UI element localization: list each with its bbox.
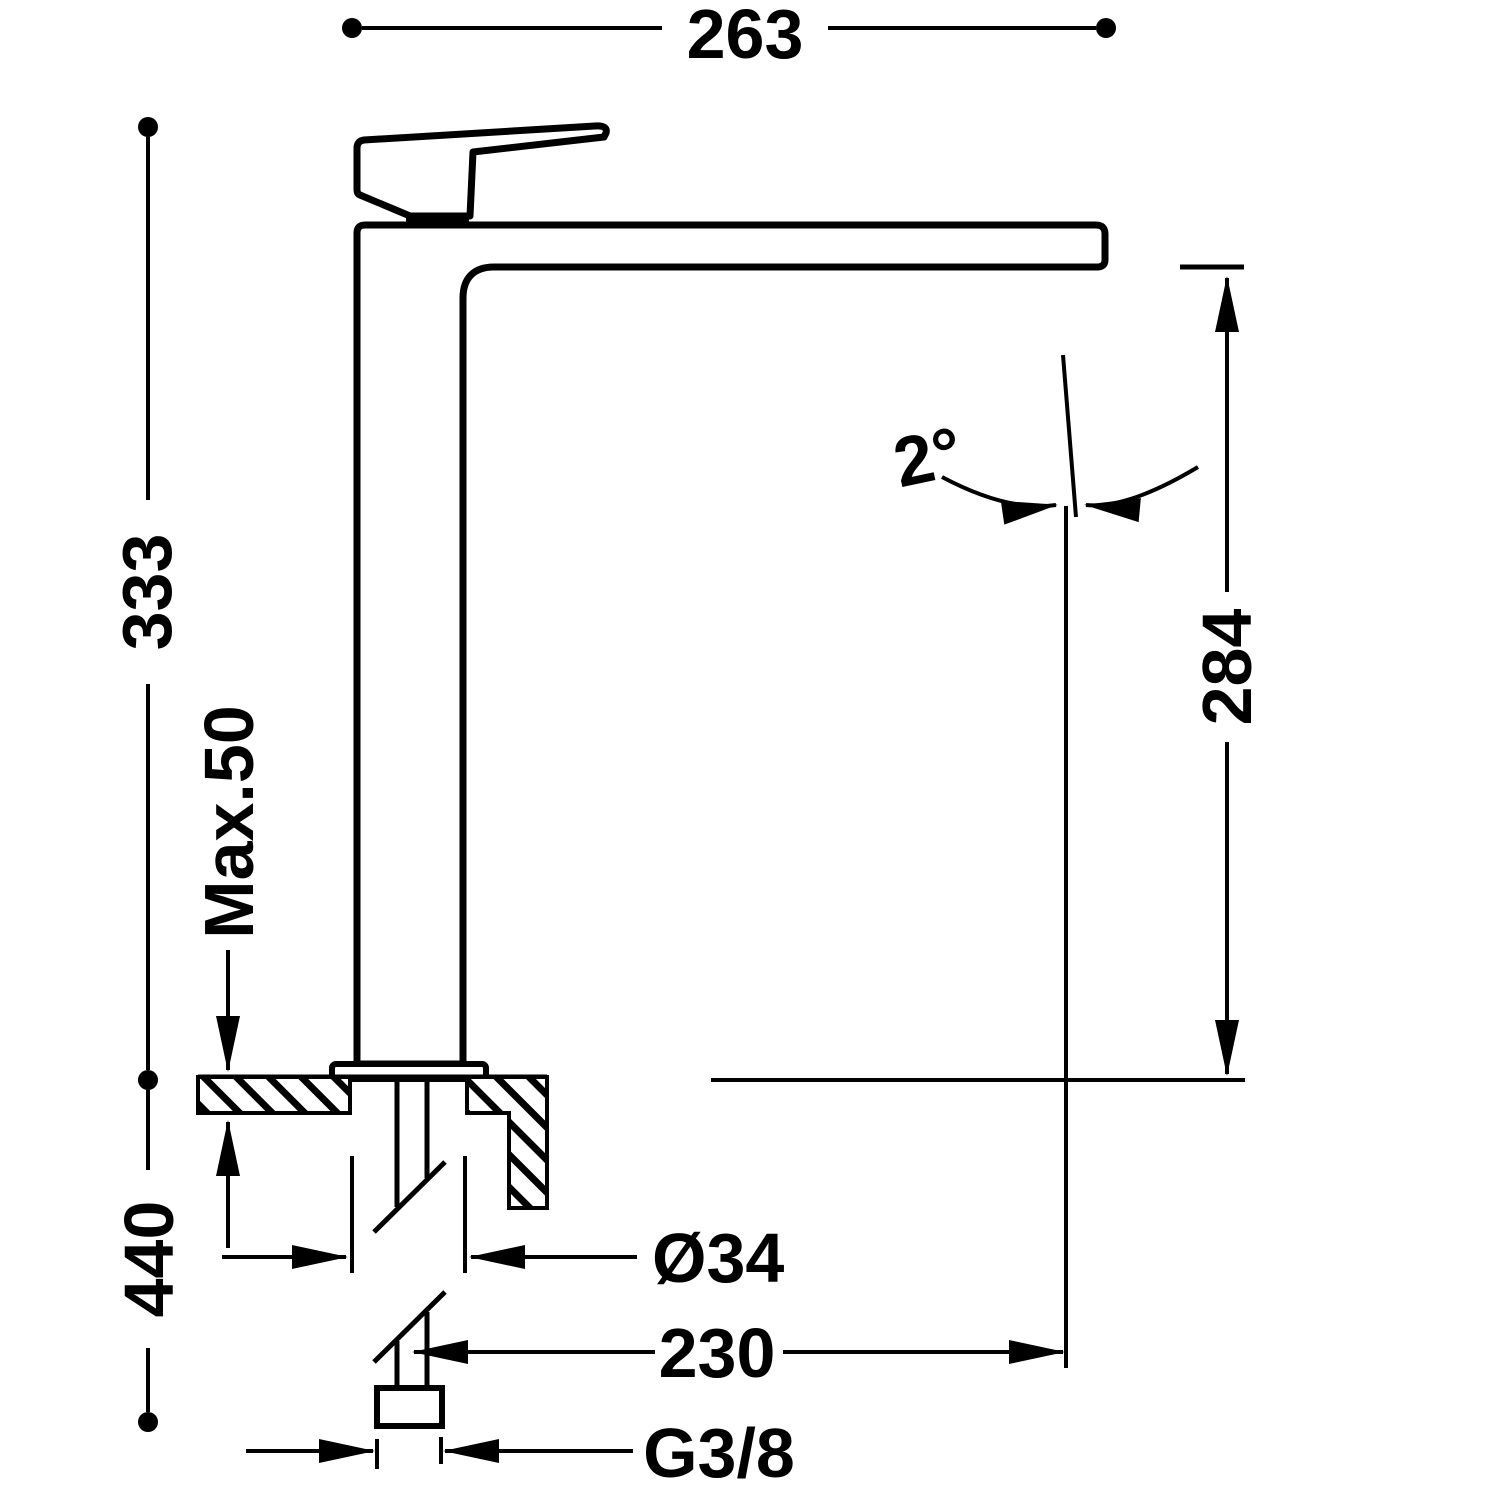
dim-endpoint-dot xyxy=(138,117,158,137)
dim-height-above-counter-group: 333 xyxy=(108,117,186,1090)
faucet-outline-group xyxy=(332,126,1105,1079)
faucet-body-and-spout-outline xyxy=(357,225,1105,1064)
overall-width-label: 263 xyxy=(687,0,804,73)
tilted-axis-line xyxy=(1063,355,1076,517)
dim-total-height-group: 440 xyxy=(110,1090,188,1432)
angle-arc-right xyxy=(1086,467,1198,505)
counter-section-group xyxy=(198,1077,547,1208)
dim-overall-width-group: 263 xyxy=(342,0,1116,73)
total-height-label: 440 xyxy=(110,1201,188,1318)
dim-endpoint-dot xyxy=(138,1070,158,1090)
break-line-upper xyxy=(374,1162,445,1232)
connection-nut xyxy=(377,1388,442,1426)
dim-hole-diameter-group: Ø34 xyxy=(222,1156,784,1297)
technical-drawing-canvas: 263 333 Max.50 440 284 2° xyxy=(0,0,1500,1500)
inlet-thread-label: G3/8 xyxy=(643,1414,795,1492)
counter-left-hatched-section xyxy=(198,1077,350,1113)
height-above-counter-label: 333 xyxy=(108,534,186,651)
dim-spout-projection-group: 230 xyxy=(414,1314,1063,1392)
faucet-lever-handle-outline xyxy=(357,126,606,216)
dim-spout-height-group: 284 xyxy=(711,267,1266,1080)
dim-endpoint-dot xyxy=(1096,18,1116,38)
spout-height-label: 284 xyxy=(1188,609,1266,726)
faucet-dimension-drawing: 263 333 Max.50 440 284 2° xyxy=(0,0,1500,1500)
dim-spout-angle-group: 2° xyxy=(887,355,1198,1368)
supply-shank-group xyxy=(374,1079,445,1426)
max-counter-thickness-label: Max.50 xyxy=(190,705,268,938)
counter-right-hatched-section xyxy=(467,1077,547,1208)
spout-angle-label: 2° xyxy=(887,412,969,502)
dim-max-counter-thickness-group: Max.50 xyxy=(190,705,268,1248)
dim-endpoint-dot xyxy=(342,18,362,38)
dim-inlet-thread-group: G3/8 xyxy=(246,1414,795,1492)
spout-projection-label: 230 xyxy=(659,1314,776,1392)
dim-endpoint-dot xyxy=(138,1412,158,1432)
hole-diameter-label: Ø34 xyxy=(652,1219,784,1297)
